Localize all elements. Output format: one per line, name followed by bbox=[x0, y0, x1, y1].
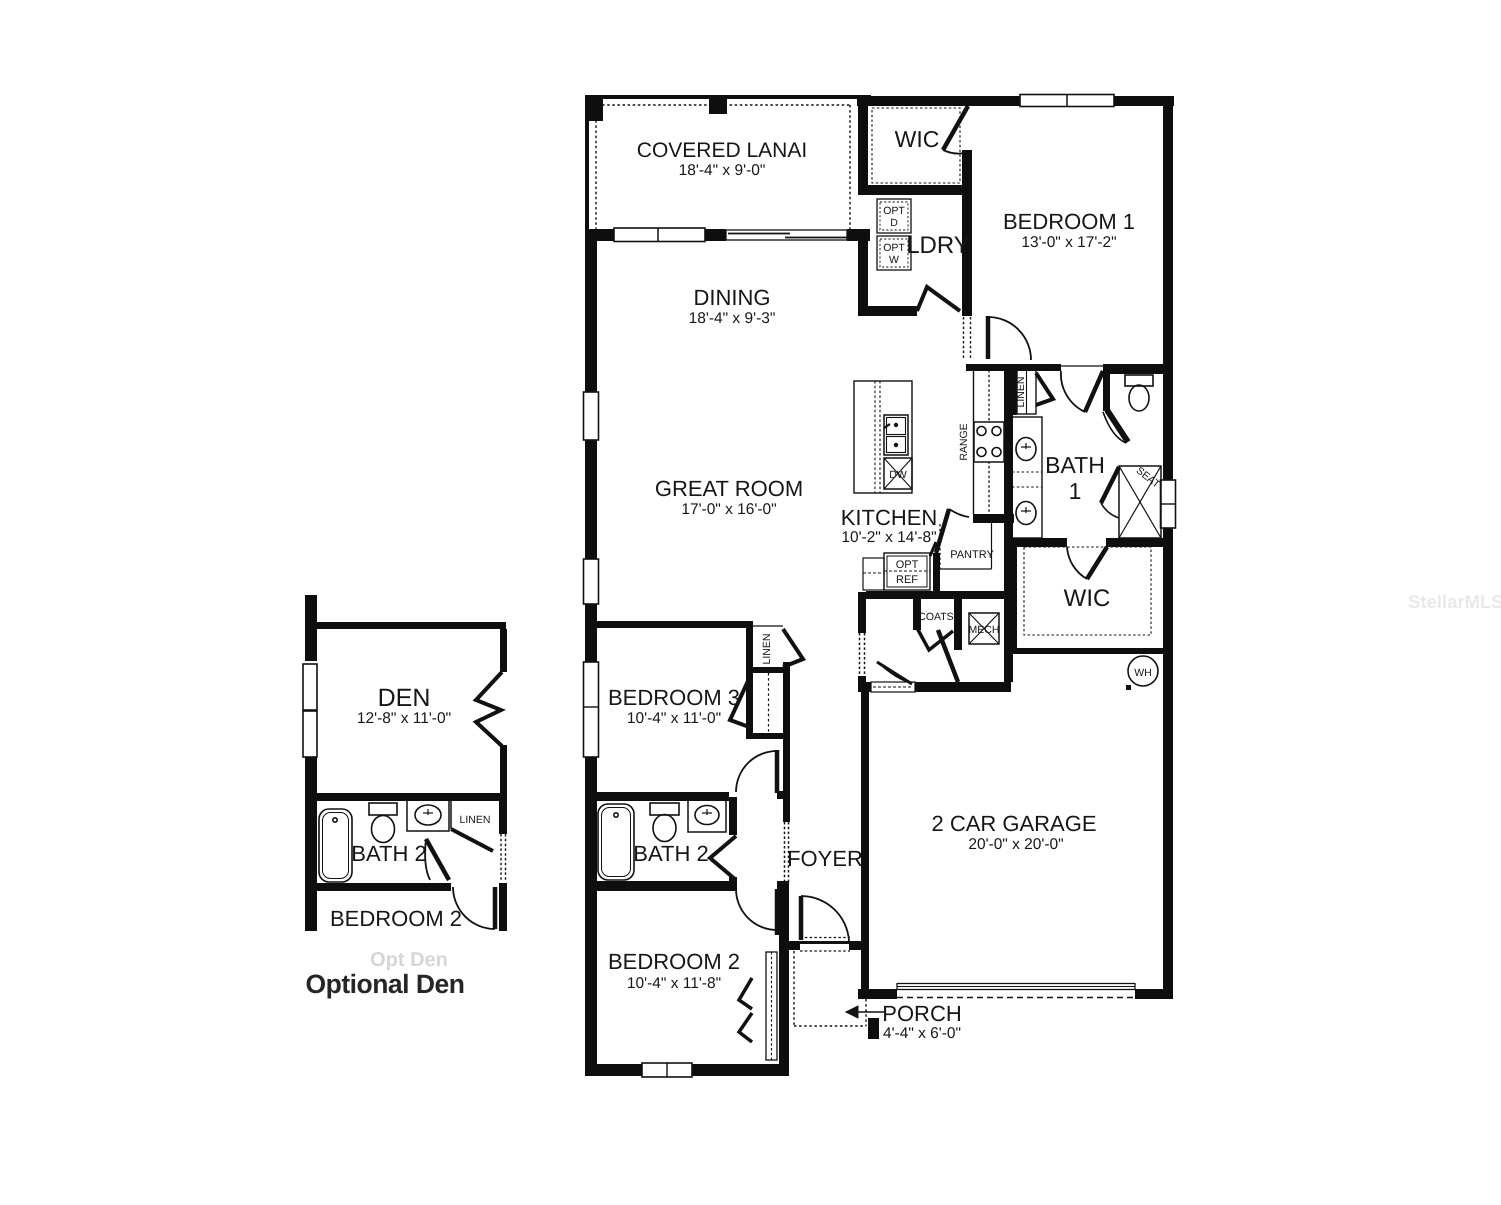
svg-text:W: W bbox=[889, 254, 899, 266]
svg-text:10'-4" x 11'-0": 10'-4" x 11'-0" bbox=[627, 710, 721, 727]
svg-text:FOYER: FOYER bbox=[787, 846, 863, 871]
svg-text:LDRY: LDRY bbox=[906, 232, 970, 259]
svg-text:LINEN: LINEN bbox=[761, 634, 773, 665]
svg-text:D: D bbox=[890, 217, 898, 229]
svg-text:BATH 2: BATH 2 bbox=[633, 841, 708, 866]
svg-text:BEDROOM 2: BEDROOM 2 bbox=[608, 949, 740, 974]
svg-text:COVERED LANAI: COVERED LANAI bbox=[637, 139, 807, 162]
svg-text:13'-0" x 17'-2": 13'-0" x 17'-2" bbox=[1021, 234, 1116, 251]
svg-text:GREAT ROOM: GREAT ROOM bbox=[655, 476, 803, 501]
svg-text:BEDROOM 3: BEDROOM 3 bbox=[608, 685, 740, 710]
svg-text:18'-4" x 9'-3": 18'-4" x 9'-3" bbox=[689, 310, 776, 327]
svg-text:1: 1 bbox=[1069, 478, 1082, 504]
svg-text:17'-0" x 16'-0": 17'-0" x 16'-0" bbox=[681, 501, 776, 518]
svg-text:20'-0" x 20'-0": 20'-0" x 20'-0" bbox=[968, 836, 1063, 853]
svg-text:PANTRY: PANTRY bbox=[950, 549, 994, 561]
svg-text:WIC: WIC bbox=[1064, 585, 1111, 612]
svg-text:LINEN: LINEN bbox=[460, 814, 491, 826]
svg-text:RANGE: RANGE bbox=[958, 423, 970, 460]
svg-text:BATH: BATH bbox=[1045, 452, 1105, 478]
svg-text:OPT: OPT bbox=[896, 559, 919, 571]
svg-text:COATS: COATS bbox=[918, 611, 953, 623]
svg-text:4'-4" x 6'-0": 4'-4" x 6'-0" bbox=[883, 1025, 961, 1042]
svg-text:StellarMLS: StellarMLS bbox=[1408, 591, 1501, 612]
svg-text:KITCHEN: KITCHEN bbox=[841, 505, 938, 530]
svg-text:2 CAR GARAGE: 2 CAR GARAGE bbox=[931, 811, 1096, 836]
svg-text:LINEN: LINEN bbox=[1015, 377, 1027, 408]
svg-text:REF: REF bbox=[896, 574, 918, 586]
svg-text:PORCH: PORCH bbox=[882, 1001, 961, 1026]
svg-text:MECH: MECH bbox=[969, 624, 1000, 636]
svg-text:WIC: WIC bbox=[895, 126, 940, 152]
svg-text:OPT: OPT bbox=[883, 242, 905, 254]
svg-text:DW: DW bbox=[889, 469, 907, 481]
svg-text:Optional Den: Optional Den bbox=[306, 969, 465, 999]
svg-text:DEN: DEN bbox=[378, 684, 431, 712]
svg-text:BEDROOM 2: BEDROOM 2 bbox=[330, 906, 462, 931]
svg-text:WH: WH bbox=[1134, 667, 1152, 679]
svg-text:OPT: OPT bbox=[883, 205, 905, 217]
svg-text:Opt Den: Opt Den bbox=[370, 949, 448, 971]
svg-text:BEDROOM 1: BEDROOM 1 bbox=[1003, 209, 1135, 234]
svg-text:18'-4" x 9'-0": 18'-4" x 9'-0" bbox=[679, 162, 766, 179]
svg-text:BATH 2: BATH 2 bbox=[351, 841, 426, 866]
svg-text:12'-8" x 11'-0": 12'-8" x 11'-0" bbox=[357, 710, 451, 727]
svg-text:10'-2" x 14'-8": 10'-2" x 14'-8" bbox=[841, 529, 936, 546]
svg-text:DINING: DINING bbox=[694, 285, 771, 310]
svg-text:10'-4" x 11'-8": 10'-4" x 11'-8" bbox=[627, 975, 721, 992]
